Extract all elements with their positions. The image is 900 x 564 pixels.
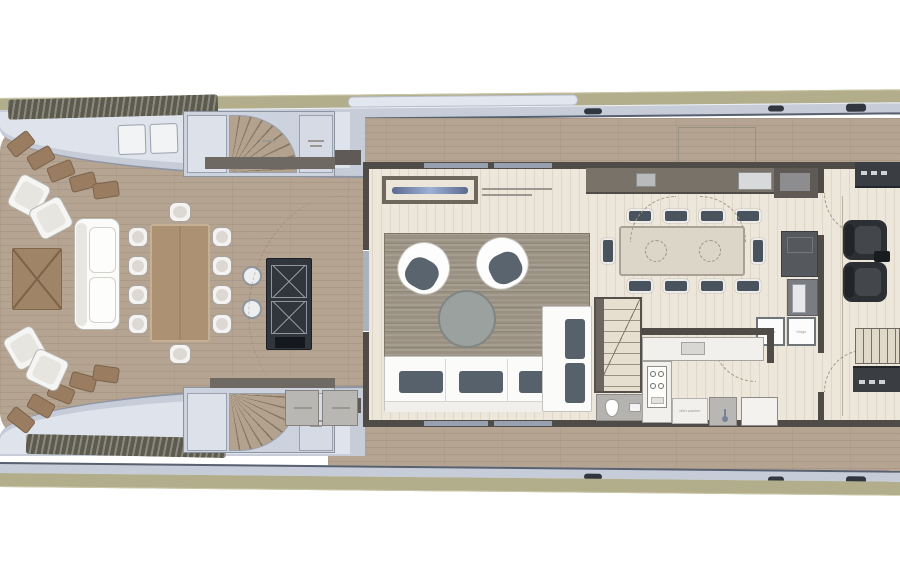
aft-dining-chair [212,256,232,276]
day-head [596,394,646,421]
aft-dining-chair [169,344,191,364]
counter-appliance [681,342,705,355]
storage-label-lines [332,407,350,409]
tv-cabinet [382,176,478,204]
aft-dining-chair [128,256,148,276]
head-sink [629,403,641,412]
deck-cushion [92,364,120,383]
cooktop-knobs [651,397,664,404]
fridge-unit: fridge [787,317,816,346]
aft-dining-chair [128,285,148,305]
cleat-icon [768,105,784,111]
coffee-table [438,290,496,348]
salon-sofa-bottom [384,356,568,412]
storage-box [322,390,358,426]
pantry-cabinet [787,279,818,316]
dishwasher-label: dish washer [682,405,699,417]
dining-chair [627,279,653,293]
dining-chair [735,279,761,293]
sideboard-appliance [636,173,656,187]
galley-counter [642,337,764,361]
window-band [494,163,552,168]
cabinet-inset [787,237,813,253]
aft-pouf-table [12,248,62,310]
aft-dining-chair [212,227,232,247]
toilet [605,399,619,417]
storage-label-lines [308,140,324,142]
cleat-icon [584,108,602,114]
stair-label-lines [262,140,276,142]
deck-locker [187,393,227,451]
seat-backrest [845,224,854,256]
stair-handrail [596,299,604,391]
dining-sideboard [586,168,782,194]
tv-annotation-lines [482,188,552,190]
burner-icon [658,371,664,377]
galley-sink [709,397,737,426]
cooktop [647,366,667,408]
storage-box [285,390,319,426]
aft-sofa [74,218,120,330]
wall-wheelhouse [818,169,824,193]
dining-chair [751,238,765,264]
stairwell-down [594,297,642,393]
coffee-machine [738,172,772,190]
wall-wheelhouse [818,392,824,420]
centerline [842,196,843,416]
sideboard-cabinet [774,168,818,198]
side-deck-bottom [328,426,900,471]
helm-seat [843,262,887,302]
window-band [424,421,488,426]
armchair-cushion [485,247,527,288]
tv-annotation-lines [482,194,532,196]
wheelhouse-stairs [855,328,900,364]
aft-dining-chair [169,202,191,222]
bulkhead-band-top [205,157,335,169]
aft-dining-chair [128,227,148,247]
storage-label-lines [294,407,312,409]
burner-icon [658,383,664,389]
deck-box [335,150,361,165]
galley-wall [767,335,774,363]
burner-icon [650,371,656,377]
seat-backrest [845,266,854,298]
aft-dining-chair [212,314,232,334]
armchair-cushion [401,253,444,295]
burner-icon [650,383,656,389]
yacht-deck-plan: fridge fridge dish washer [0,0,900,564]
table-centerpiece [699,240,721,262]
window-band [424,163,488,168]
storage-label-lines [310,145,322,147]
helm-console-bottom [853,366,900,392]
sofa-backrest [76,223,87,326]
sofa-cushion [565,363,585,403]
seat-cushion [855,226,881,254]
roof-hatch-highlight [348,94,578,107]
sliding-door-aft [363,250,369,332]
sun-lounger [117,124,146,155]
salon-sofa-right [542,306,592,412]
aft-dining-chair [212,285,232,305]
dishwasher-unit: dish washer [672,398,708,424]
aft-dining-chair [128,314,148,334]
sofa-cushion [565,319,585,359]
wall-wheelhouse [818,235,824,353]
faucet-icon [724,409,726,417]
dining-chair [601,238,615,264]
helm-console-top [855,162,900,188]
galley-appliance [741,397,778,426]
sofa-cushion [89,227,116,273]
side-deck-top [328,118,900,165]
window-band [494,421,552,426]
galley-wall [642,328,774,335]
sofa-backrest [385,401,567,412]
sofa-cushion [459,371,503,393]
fridge-label: fridge [795,325,808,338]
pantry-cabinet [781,231,818,277]
deck-hatch-outline [678,127,756,163]
bulkhead-band-bottom [210,378,335,388]
sun-lounger-pair [117,123,182,157]
seat-cushion [855,268,881,296]
console-instruments [861,171,889,175]
console-instruments [859,380,887,384]
aft-dining-table [150,224,210,342]
anchor-fitting-icon [846,104,866,112]
cabinet-inset [792,284,806,313]
dining-chair [699,279,725,293]
helm-side-console [874,251,890,262]
sun-lounger [149,123,178,154]
cabinet-inset [780,173,810,191]
table-centerpiece [645,240,667,262]
dining-chair [663,279,689,293]
sofa-cushion [399,371,443,393]
sofa-cushion [89,277,116,323]
tv-screen [392,187,468,194]
